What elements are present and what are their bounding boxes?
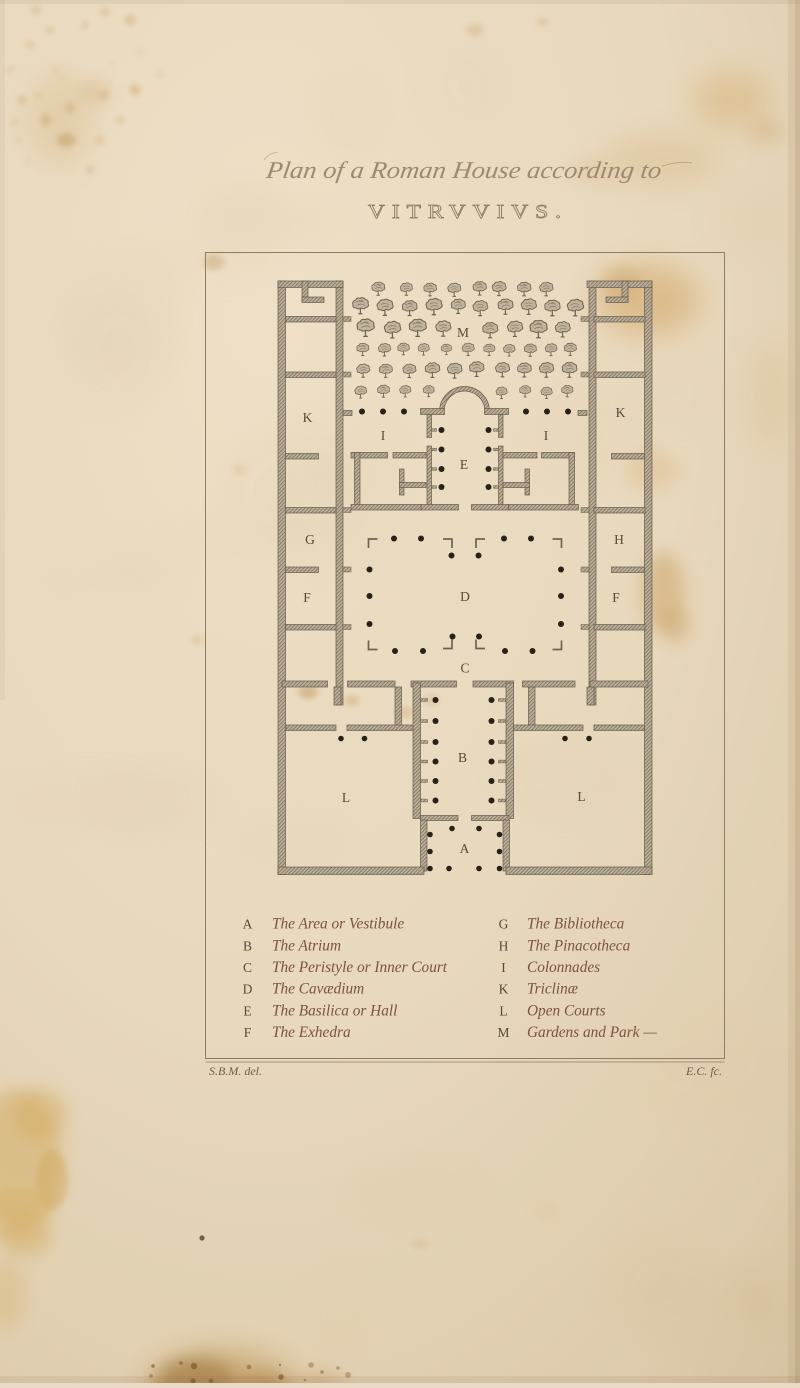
svg-text:K: K [616,405,626,420]
svg-text:Triclinæ: Triclinæ [527,981,578,998]
svg-text:B: B [243,938,252,953]
svg-text:F: F [612,590,620,605]
svg-text:M: M [497,1025,509,1040]
svg-text:I: I [501,960,506,975]
svg-text:The Atrium: The Atrium [272,937,341,954]
svg-text:F: F [244,1025,252,1040]
svg-text:F: F [303,590,311,605]
svg-text:C: C [243,960,252,975]
svg-text:The Cavædium: The Cavædium [272,981,364,998]
svg-text:A: A [460,841,470,856]
svg-text:A: A [243,917,253,932]
svg-text:L: L [342,790,350,805]
svg-text:D: D [460,589,470,604]
svg-text:Colonnades: Colonnades [527,959,600,976]
svg-text:E.C. fc.: E.C. fc. [685,1064,722,1078]
svg-text:S.B.M. del.: S.B.M. del. [209,1064,262,1078]
svg-text:Gardens and Park —: Gardens and Park — [527,1024,657,1041]
svg-text:D: D [243,982,253,997]
svg-text:C: C [460,661,469,676]
svg-text:Open Courts: Open Courts [527,1002,606,1019]
svg-text:K: K [499,982,509,997]
svg-text:The Exhedra: The Exhedra [272,1024,351,1041]
svg-text:M: M [457,325,469,340]
svg-text:VITRVVIVS.: VITRVVIVS. [368,201,568,223]
svg-text:K: K [303,410,313,425]
svg-text:Plan of a Roman House accordin: Plan of a Roman House according to [264,158,664,184]
svg-text:G: G [305,532,315,547]
svg-text:E: E [243,1003,251,1018]
svg-text:L: L [499,1003,507,1018]
svg-text:B: B [458,750,467,765]
svg-text:H: H [499,938,509,953]
svg-text:The Bibliotheca: The Bibliotheca [527,916,625,933]
svg-text:E: E [460,457,468,472]
svg-text:L: L [577,789,585,804]
svg-text:The Peristyle or Inner Court: The Peristyle or Inner Court [272,959,448,976]
svg-text:The Pinacotheca: The Pinacotheca [527,937,631,954]
svg-text:The Area or Vestibule: The Area or Vestibule [272,916,404,933]
svg-text:H: H [614,532,624,547]
svg-text:G: G [499,917,509,932]
svg-text:I: I [544,428,549,443]
svg-text:The Basilica or Hall: The Basilica or Hall [272,1002,397,1019]
svg-text:I: I [381,428,386,443]
